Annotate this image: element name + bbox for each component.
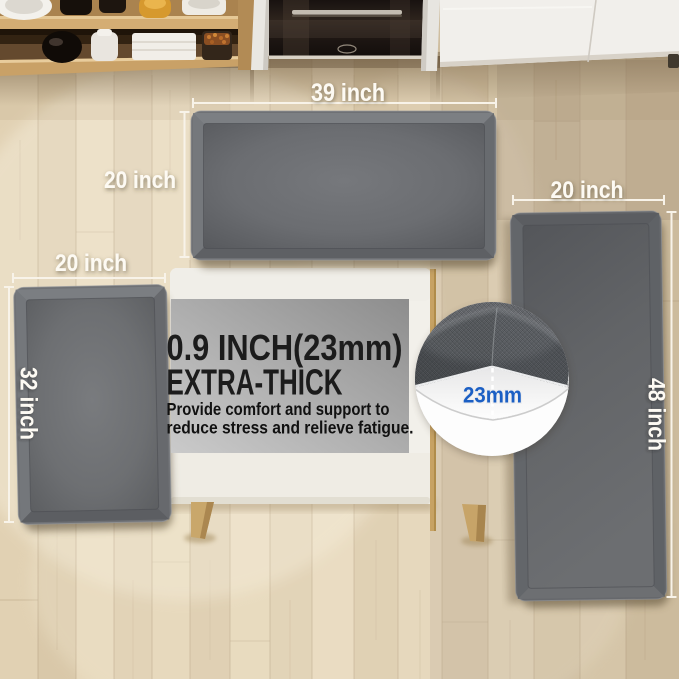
svg-text:Provide comfort and support to: Provide comfort and support to <box>167 399 390 419</box>
svg-text:23mm: 23mm <box>463 383 522 408</box>
svg-text:48 inch: 48 inch <box>643 378 670 451</box>
svg-text:20 inch: 20 inch <box>55 250 127 277</box>
svg-text:32 inch: 32 inch <box>15 367 42 440</box>
svg-text:reduce stress and relieve fati: reduce stress and relieve fatigue. <box>167 418 414 438</box>
svg-text:20 inch: 20 inch <box>104 167 176 194</box>
svg-text:20 inch: 20 inch <box>551 177 624 204</box>
svg-text:EXTRA-THICK: EXTRA-THICK <box>167 362 343 403</box>
svg-text:39 inch: 39 inch <box>311 79 385 107</box>
